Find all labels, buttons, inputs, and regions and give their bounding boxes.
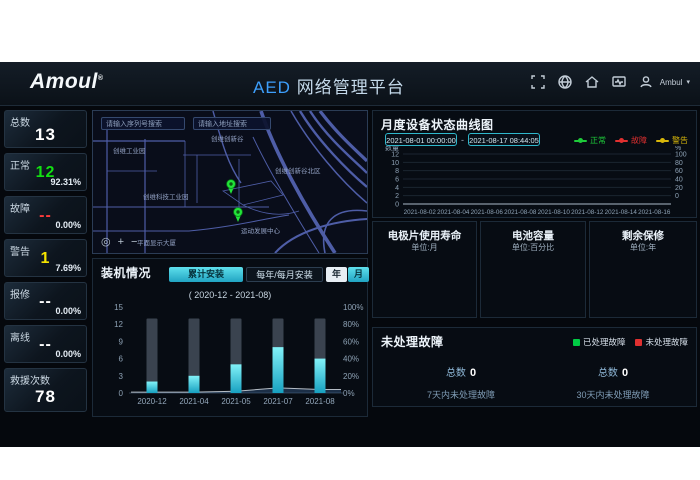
svg-text:2021-08-06: 2021-08-06 <box>471 209 504 216</box>
status-panel: 月度设备状态曲线图 2021-08-01 00:00:00 - 2021-08-… <box>372 110 697 218</box>
svg-text:0: 0 <box>395 202 399 209</box>
locate-icon[interactable]: ◎ <box>101 237 111 248</box>
map-label: 创维创新谷北区 <box>275 166 321 175</box>
warranty-panel: 剩余保修 单位:年 <box>589 221 697 318</box>
date-separator: - <box>461 135 464 145</box>
dashboard: Amoul® AED 网络管理平台 Ambul ▾ 总 <box>0 62 700 447</box>
legend-line-icon <box>615 140 628 142</box>
svg-text:2021-08-12: 2021-08-12 <box>571 209 604 216</box>
install-date-range: ( 2020-12 - 2021-08) <box>93 290 367 300</box>
home-icon[interactable] <box>584 74 600 90</box>
language-icon[interactable] <box>557 74 573 90</box>
zoom-out-button[interactable]: − <box>131 237 137 248</box>
legend-square-icon <box>635 339 642 346</box>
tab-periodic-install[interactable]: 每年/每月安装 <box>246 267 323 282</box>
legend-normal[interactable]: 正常 <box>574 135 606 146</box>
svg-text:2021-04: 2021-04 <box>179 397 209 406</box>
svg-text:2: 2 <box>395 193 399 200</box>
stat-card-rescues: 救援次数 78 <box>4 368 87 412</box>
gauge-chart <box>590 251 696 317</box>
svg-text:12: 12 <box>391 152 399 159</box>
svg-text:6: 6 <box>395 177 399 184</box>
map-panel[interactable]: 创维工业园 创维创新谷 创维科技工业园 创维创新谷北区 平面显示大厦 运动发展中… <box>92 110 368 254</box>
gauge-title: 剩余保修 <box>590 228 696 243</box>
page-title: AED 网络管理平台 <box>253 73 405 98</box>
svg-text:9: 9 <box>119 337 124 346</box>
svg-text:15: 15 <box>114 303 123 312</box>
svg-text:8: 8 <box>395 168 399 175</box>
map-label: 创维创新谷 <box>211 134 244 143</box>
stat-card-repair: 报修 -- 0.00% <box>4 282 87 320</box>
legend-resolved[interactable]: 已处理故障 <box>573 336 626 348</box>
svg-text:60: 60 <box>675 168 683 175</box>
year-button[interactable]: 年 <box>326 267 347 282</box>
serial-search-input[interactable]: 请输入序列号搜索 <box>101 117 185 130</box>
svg-text:2021-08-08: 2021-08-08 <box>504 209 537 216</box>
stat-card-warning: 警告 1 7.69% <box>4 239 87 277</box>
header-bar: Amoul® AED 网络管理平台 Ambul ▾ <box>0 62 700 106</box>
electrode-life-panel: 电极片使用寿命 单位:月 <box>372 221 477 318</box>
faults-30day-group: 总数0 30天内未处理故障 <box>533 364 693 401</box>
svg-text:2021-08-16: 2021-08-16 <box>638 209 671 216</box>
gauge-chart <box>481 251 585 317</box>
svg-text:2021-05: 2021-05 <box>221 397 251 406</box>
legend-square-icon <box>573 339 580 346</box>
legend-line-icon <box>656 140 669 142</box>
map-label: 创维工业园 <box>113 146 146 155</box>
svg-text:2020-12: 2020-12 <box>137 397 167 406</box>
legend-warning[interactable]: 警告 <box>656 135 688 146</box>
battery-capacity-panel: 电池容量 单位:百分比 <box>480 221 586 318</box>
stat-card-fault: 故障 -- 0.00% <box>4 196 87 234</box>
install-bar-chart: 15129630100%80%60%40%20%0%2020-122021-04… <box>93 303 367 415</box>
svg-text:2021-07: 2021-07 <box>263 397 293 406</box>
date-from-input[interactable]: 2021-08-01 00:00:00 <box>385 133 457 146</box>
status-line-chart: 121001080860640420200数量%2021-08-022021-0… <box>373 146 696 218</box>
install-panel: 装机情况 累计安装 每年/每月安装 年 月 ( 2020-12 - 2021-0… <box>92 258 368 417</box>
map-canvas: 创维工业园 创维创新谷 创维科技工业园 创维创新谷北区 平面显示大厦 运动发展中… <box>93 111 367 253</box>
legend-line-icon <box>574 140 587 142</box>
faults-title: 未处理故障 <box>381 333 444 350</box>
svg-text:2021-08-02: 2021-08-02 <box>404 209 437 216</box>
svg-text:100: 100 <box>675 152 687 159</box>
svg-text:2021-08-10: 2021-08-10 <box>538 209 571 216</box>
svg-text:40%: 40% <box>343 355 359 364</box>
stat-card-normal: 正常 12 92.31% <box>4 153 87 191</box>
svg-text:60%: 60% <box>343 337 359 346</box>
svg-text:20%: 20% <box>343 372 359 381</box>
map-label: 运动发展中心 <box>241 226 281 235</box>
install-title: 装机情况 <box>101 264 151 281</box>
svg-text:40: 40 <box>675 177 683 184</box>
svg-text:100%: 100% <box>343 303 363 312</box>
svg-text:2021-08-04: 2021-08-04 <box>437 209 470 216</box>
caret-down-icon[interactable]: ▾ <box>686 78 690 86</box>
svg-text:20: 20 <box>675 185 683 192</box>
legend-fault[interactable]: 故障 <box>615 135 647 146</box>
gauge-chart <box>373 251 476 317</box>
user-icon[interactable] <box>638 74 654 90</box>
map-label: 平面显示大厦 <box>137 238 177 247</box>
brand-logo: Amoul® <box>30 70 104 94</box>
svg-text:80%: 80% <box>343 320 359 329</box>
svg-text:0: 0 <box>119 389 124 398</box>
legend-unresolved[interactable]: 未处理故障 <box>635 336 688 348</box>
stat-card-total: 总数 13 <box>4 110 87 148</box>
fullscreen-icon[interactable] <box>530 74 546 90</box>
svg-text:6: 6 <box>119 355 124 364</box>
month-button[interactable]: 月 <box>348 267 369 282</box>
date-to-input[interactable]: 2021-08-17 08:44:05 <box>468 133 540 146</box>
svg-text:0%: 0% <box>343 389 355 398</box>
gauge-title: 电池容量 <box>481 228 585 243</box>
svg-text:2021-08-14: 2021-08-14 <box>605 209 638 216</box>
stat-card-offline: 离线 -- 0.00% <box>4 325 87 363</box>
user-name[interactable]: Ambul <box>660 78 683 87</box>
address-search-input[interactable]: 请输入地址搜索 <box>193 117 271 130</box>
svg-text:10: 10 <box>391 160 399 167</box>
svg-text:80: 80 <box>675 160 683 167</box>
svg-text:3: 3 <box>119 372 124 381</box>
faults-7day-group: 总数0 7天内未处理故障 <box>381 364 541 401</box>
zoom-in-button[interactable]: + <box>118 237 124 248</box>
monitor-icon[interactable] <box>611 74 627 90</box>
status-title: 月度设备状态曲线图 <box>381 116 494 133</box>
svg-text:12: 12 <box>114 320 123 329</box>
svg-text:数量: 数量 <box>385 146 399 152</box>
map-label: 创维科技工业园 <box>143 192 189 201</box>
svg-text:%: % <box>675 146 681 152</box>
svg-text:4: 4 <box>395 185 399 192</box>
tab-cumulative-install[interactable]: 累计安装 <box>169 267 243 282</box>
svg-text:0: 0 <box>675 193 679 200</box>
gauge-title: 电极片使用寿命 <box>373 228 476 243</box>
faults-panel: 未处理故障 已处理故障 未处理故障 总数0 7天内未处理故障 总数0 30天内未… <box>372 327 697 407</box>
svg-text:2021-08: 2021-08 <box>305 397 335 406</box>
